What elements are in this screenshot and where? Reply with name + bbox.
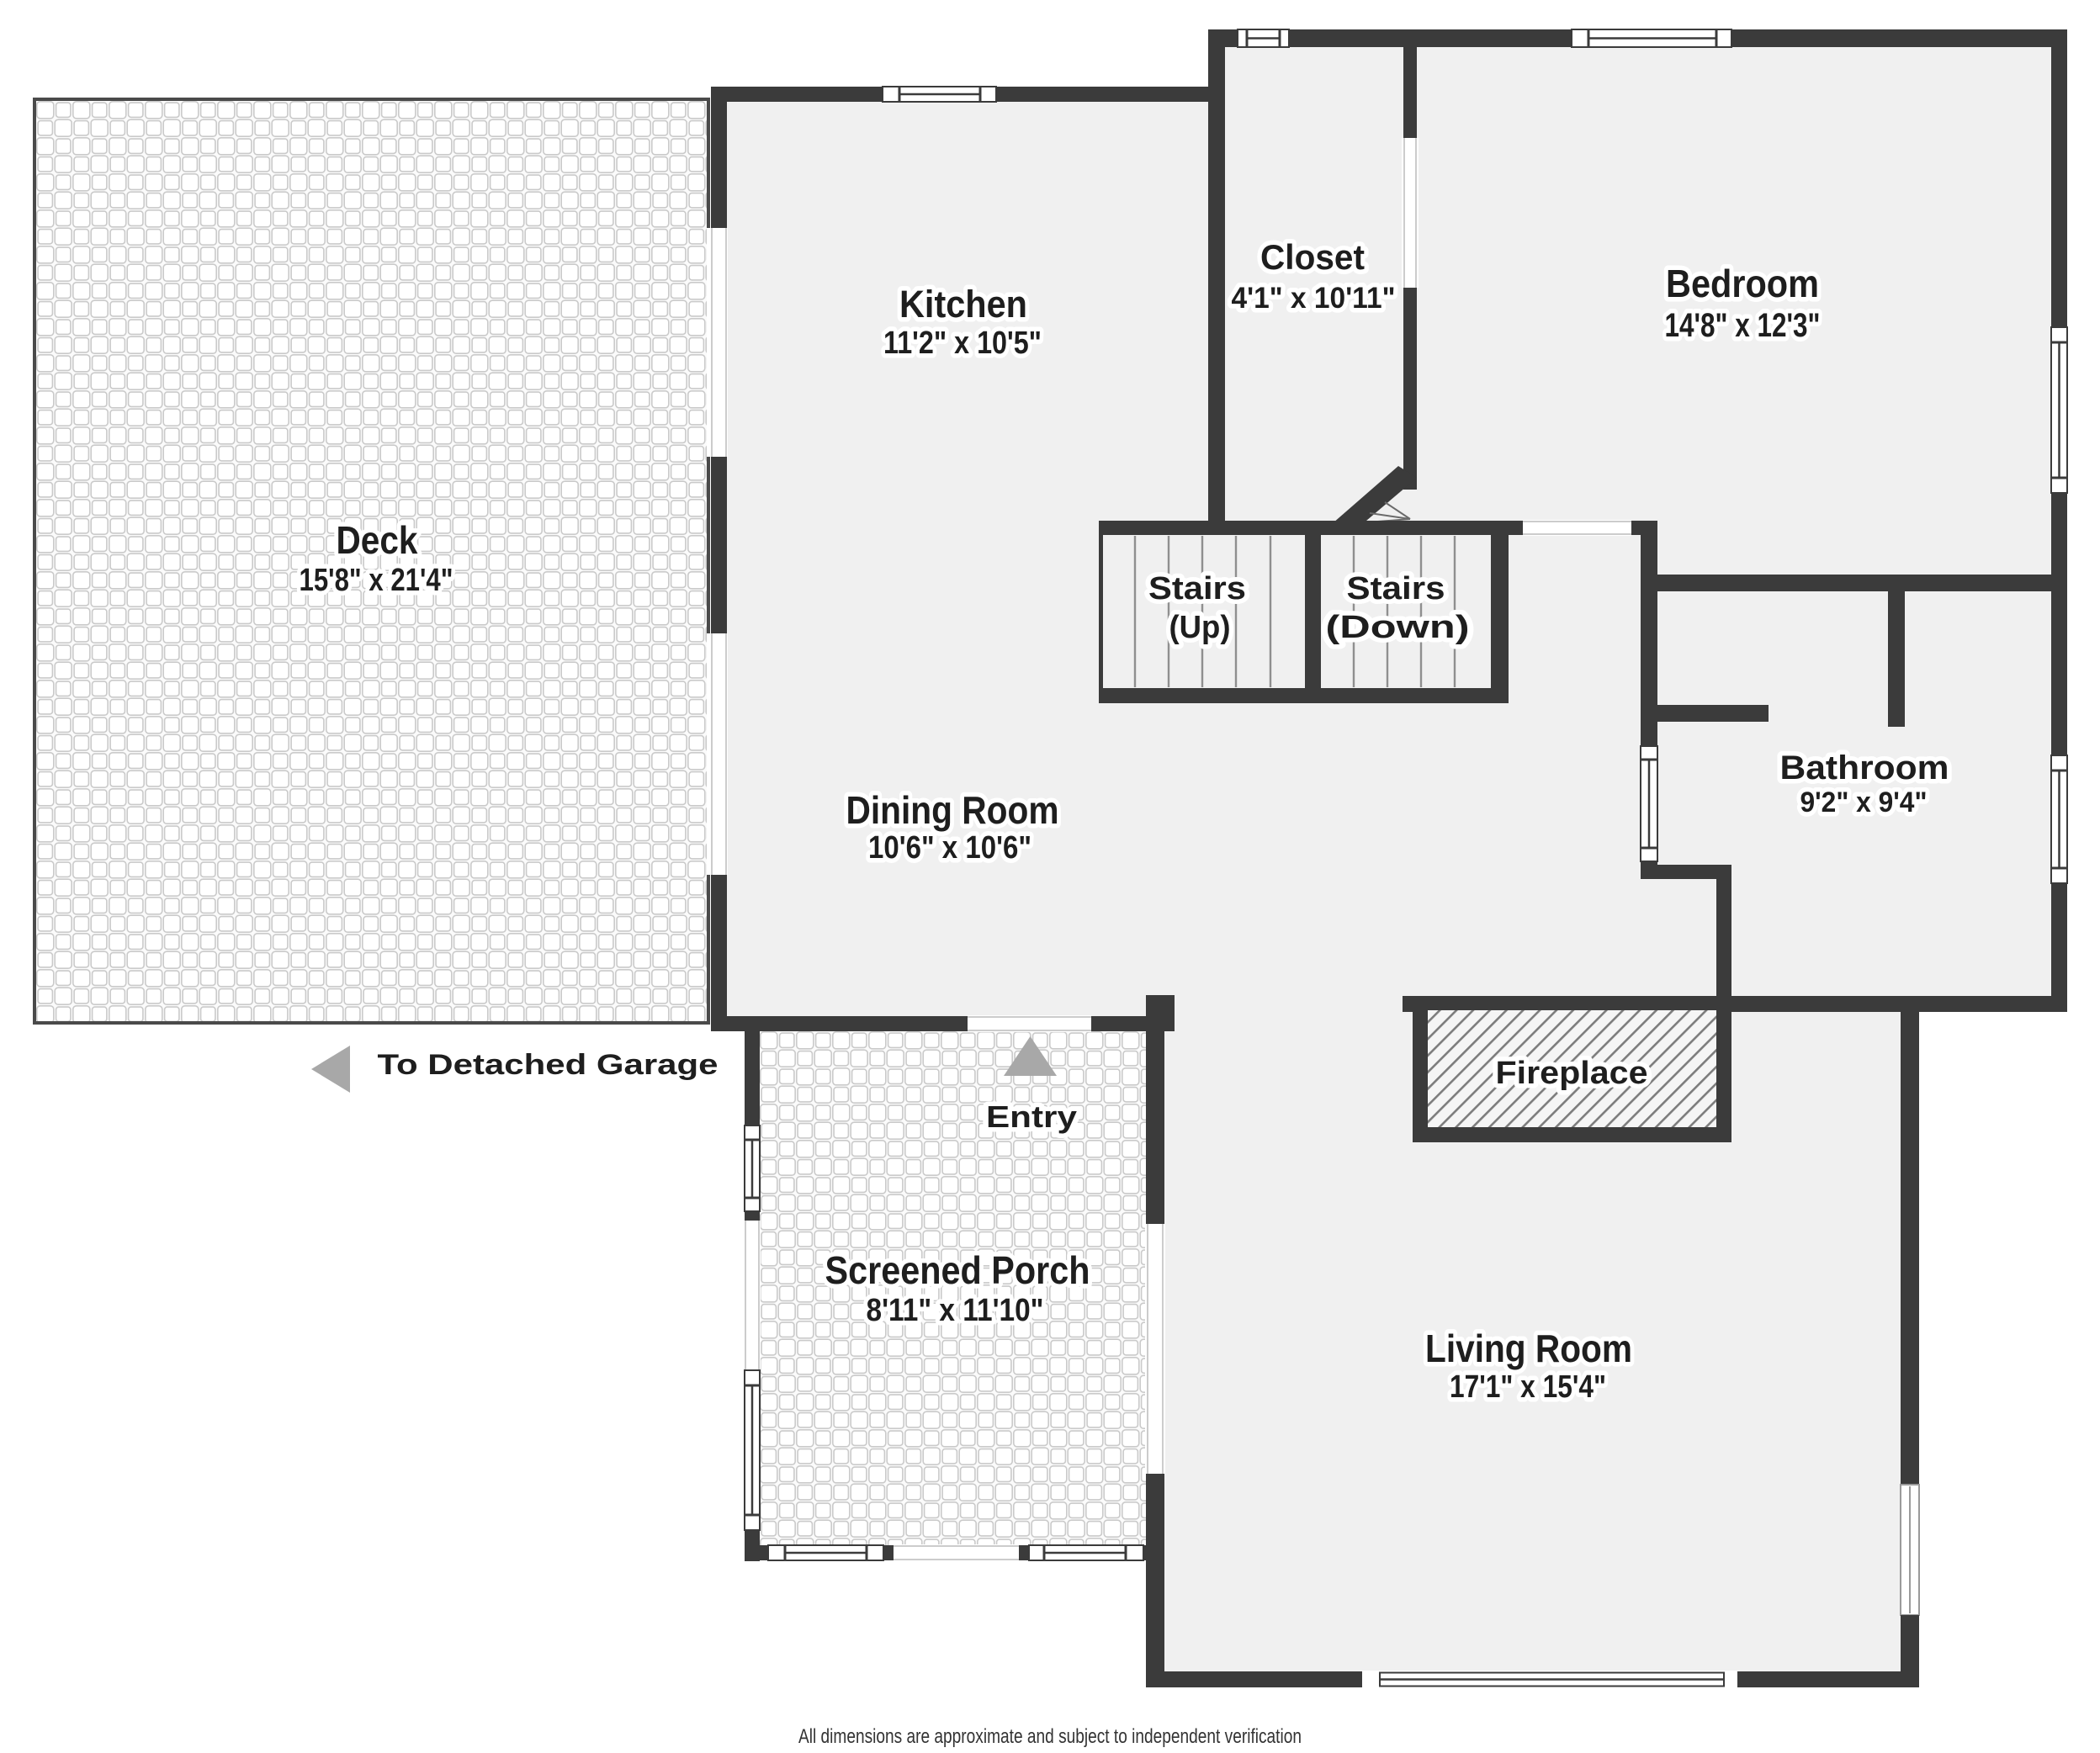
- svg-text:All dimensions are approximate: All dimensions are approximate and subje…: [798, 1725, 1302, 1748]
- svg-text:Kitchen: Kitchen: [899, 283, 1027, 326]
- svg-text:(Up): (Up): [1169, 610, 1231, 645]
- svg-text:10'6" x 10'6": 10'6" x 10'6": [868, 830, 1031, 866]
- svg-text:17'1" x 15'4": 17'1" x 15'4": [1450, 1369, 1606, 1405]
- svg-text:15'8" x 21'4": 15'8" x 21'4": [300, 563, 453, 598]
- svg-text:Bedroom: Bedroom: [1666, 262, 1819, 305]
- svg-text:Bathroom: Bathroom: [1780, 749, 1949, 786]
- svg-text:Entry: Entry: [986, 1099, 1077, 1134]
- svg-text:11'2" x 10'5": 11'2" x 10'5": [883, 326, 1042, 361]
- svg-text:To Detached Garage: To Detached Garage: [378, 1049, 719, 1081]
- svg-text:14'8" x 12'3": 14'8" x 12'3": [1665, 307, 1821, 344]
- svg-text:Fireplace: Fireplace: [1496, 1056, 1648, 1091]
- svg-text:9'2" x 9'4": 9'2" x 9'4": [1800, 786, 1928, 818]
- svg-text:Deck: Deck: [337, 518, 418, 562]
- svg-text:(Down): (Down): [1326, 610, 1470, 645]
- svg-text:Dining Room: Dining Room: [846, 788, 1059, 832]
- svg-text:Stairs: Stairs: [1148, 571, 1246, 606]
- svg-text:4'1" x 10'11": 4'1" x 10'11": [1232, 282, 1396, 315]
- svg-text:Screened Porch: Screened Porch: [825, 1248, 1090, 1292]
- svg-text:Living Room: Living Room: [1425, 1327, 1632, 1370]
- svg-text:Stairs: Stairs: [1347, 571, 1445, 606]
- svg-text:Closet: Closet: [1260, 237, 1365, 277]
- svg-text:8'11" x 11'10": 8'11" x 11'10": [867, 1293, 1044, 1328]
